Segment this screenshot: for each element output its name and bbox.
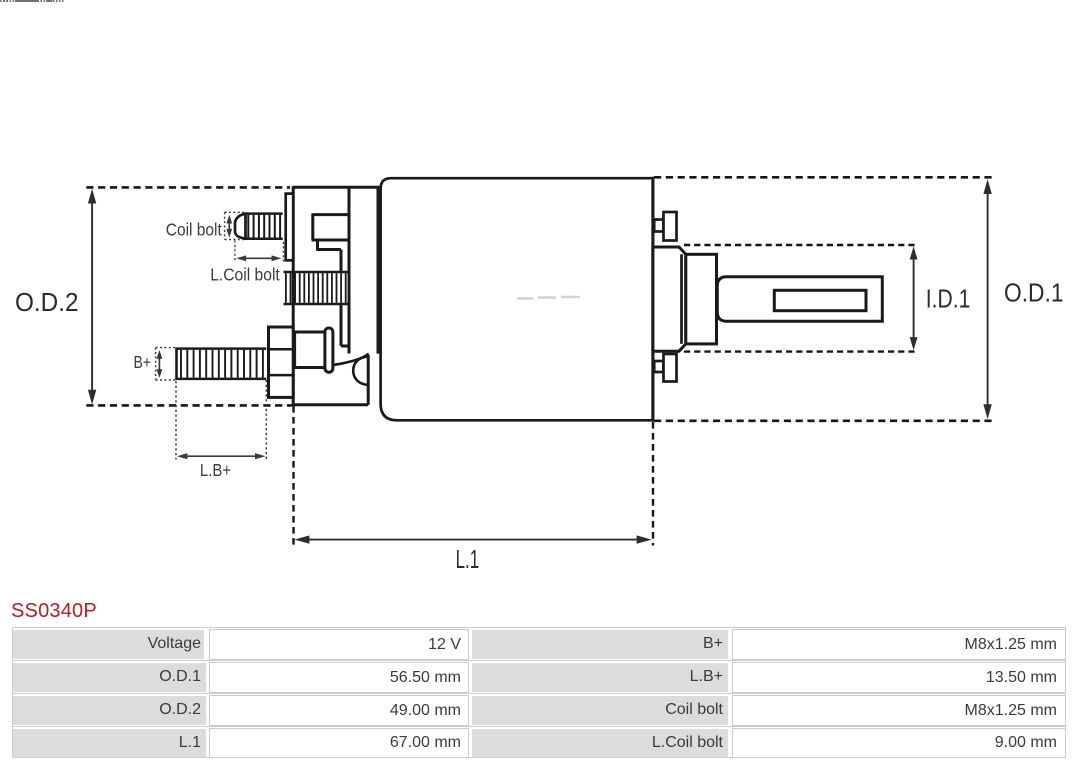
svg-text:L.Coil bolt: L.Coil bolt	[210, 265, 280, 285]
svg-text:O.D.1: O.D.1	[1004, 277, 1064, 307]
svg-text:L.1: L.1	[456, 544, 480, 574]
svg-text:B+: B+	[134, 352, 152, 372]
svg-text:I.D.1: I.D.1	[926, 284, 971, 314]
svg-text:L.B+: L.B+	[200, 460, 231, 480]
svg-text:O.D.2: O.D.2	[15, 287, 79, 317]
svg-text:Coil bolt: Coil bolt	[166, 220, 222, 240]
